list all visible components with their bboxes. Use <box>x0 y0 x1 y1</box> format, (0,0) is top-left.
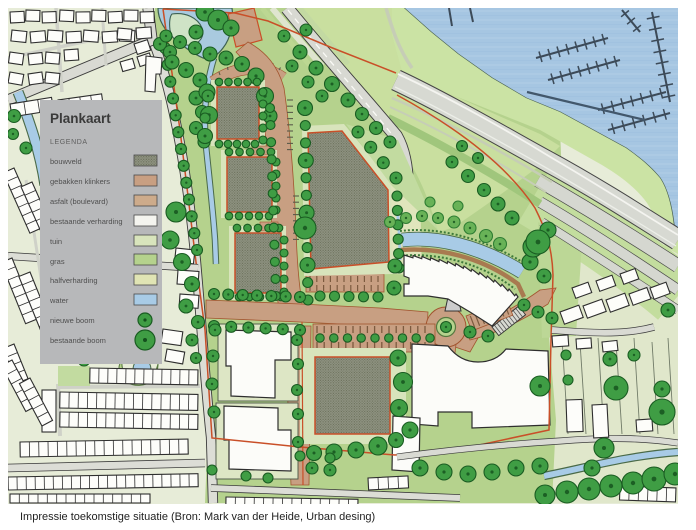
svg-text:bouwveld: bouwveld <box>50 157 82 166</box>
svg-text:water: water <box>49 296 69 305</box>
svg-text:halfverharding: halfverharding <box>50 276 98 285</box>
svg-text:gebakken klinkers: gebakken klinkers <box>50 177 110 186</box>
svg-text:Plankaart: Plankaart <box>50 111 111 126</box>
svg-text:nieuwe boom: nieuwe boom <box>50 316 95 325</box>
svg-text:asfalt (boulevard): asfalt (boulevard) <box>50 197 108 206</box>
svg-text:LEGENDA: LEGENDA <box>50 139 88 146</box>
svg-text:bestaande verharding: bestaande verharding <box>50 217 123 226</box>
svg-text:bestaande boom: bestaande boom <box>50 336 106 345</box>
svg-text:tuin: tuin <box>50 237 62 246</box>
svg-text:gras: gras <box>50 257 65 266</box>
